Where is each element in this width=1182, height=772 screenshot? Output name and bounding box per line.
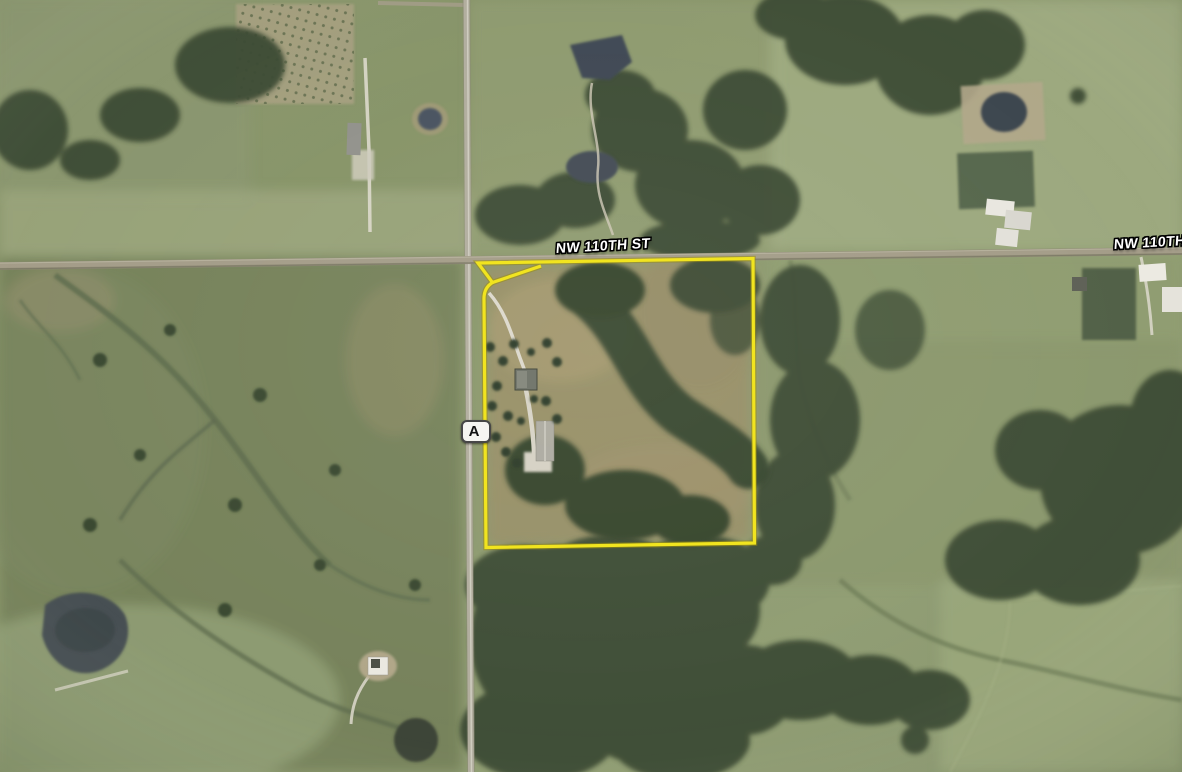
highway-shield: A bbox=[461, 420, 491, 443]
map-canvas[interactable]: A NW 110TH ST NW 110TH ST bbox=[0, 0, 1182, 772]
vignette bbox=[0, 0, 1182, 772]
highway-shield-letter: A bbox=[469, 424, 480, 439]
aerial-imagery bbox=[0, 0, 1182, 772]
